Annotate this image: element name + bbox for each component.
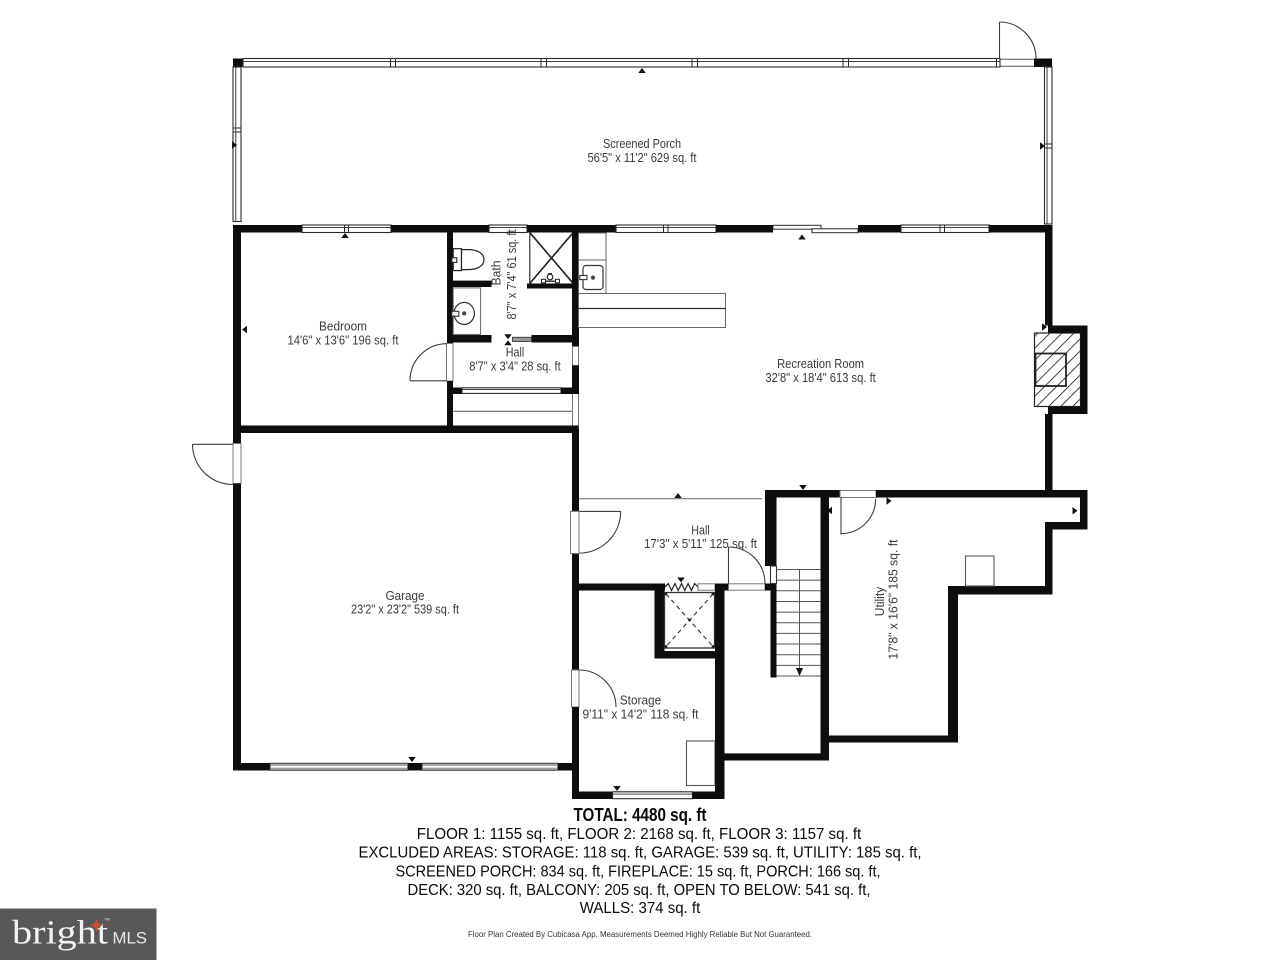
svg-text:Bedroom: Bedroom (319, 319, 367, 334)
svg-text:Hall: Hall (506, 345, 525, 360)
svg-text:FLOOR 1: 1155 sq. ft, FLOOR 2:: FLOOR 1: 1155 sq. ft, FLOOR 2: 2168 sq. … (417, 826, 862, 843)
svg-text:bright: bright (12, 915, 109, 952)
svg-text:EXCLUDED AREAS: STORAGE: 118 s: EXCLUDED AREAS: STORAGE: 118 sq. ft, GAR… (359, 845, 922, 862)
svg-text:14'6" x 13'6" 196 sq. ft: 14'6" x 13'6" 196 sq. ft (288, 333, 399, 348)
svg-text:Bath: Bath (489, 261, 504, 286)
svg-text:8'7" x 7'4" 61 sq. ft: 8'7" x 7'4" 61 sq. ft (504, 229, 519, 319)
svg-text:WALLS: 374 sq. ft: WALLS: 374 sq. ft (580, 900, 701, 917)
svg-text:8'7" x 3'4" 28 sq. ft: 8'7" x 3'4" 28 sq. ft (469, 358, 561, 373)
svg-text:MLS: MLS (113, 928, 148, 947)
svg-text:56'5" x 11'2" 629 sq. ft: 56'5" x 11'2" 629 sq. ft (588, 150, 697, 165)
svg-text:Storage: Storage (620, 693, 662, 708)
svg-text:32'8" x 18'4" 613 sq. ft: 32'8" x 18'4" 613 sq. ft (765, 370, 876, 385)
svg-text:9'11" x 14'2" 118 sq. ft: 9'11" x 14'2" 118 sq. ft (583, 707, 699, 722)
svg-text:™: ™ (104, 918, 111, 925)
svg-text:17'8" x 16'6" 185 sq. ft: 17'8" x 16'6" 185 sq. ft (886, 539, 901, 659)
svg-text:SCREENED PORCH: 834 sq. ft, FI: SCREENED PORCH: 834 sq. ft, FIREPLACE: 1… (396, 864, 881, 881)
svg-text:Screened Porch: Screened Porch (603, 136, 681, 151)
svg-text:23'2" x 23'2" 539 sq. ft: 23'2" x 23'2" 539 sq. ft (351, 602, 459, 617)
svg-text:Floor Plan Created By Cubicasa: Floor Plan Created By Cubicasa App. Meas… (468, 930, 812, 939)
svg-text:TOTAL: 4480 sq. ft: TOTAL: 4480 sq. ft (574, 805, 707, 825)
svg-text:DECK: 320 sq. ft, BALCONY: 205: DECK: 320 sq. ft, BALCONY: 205 sq. ft, O… (408, 882, 871, 899)
svg-text:Recreation Room: Recreation Room (777, 356, 864, 371)
